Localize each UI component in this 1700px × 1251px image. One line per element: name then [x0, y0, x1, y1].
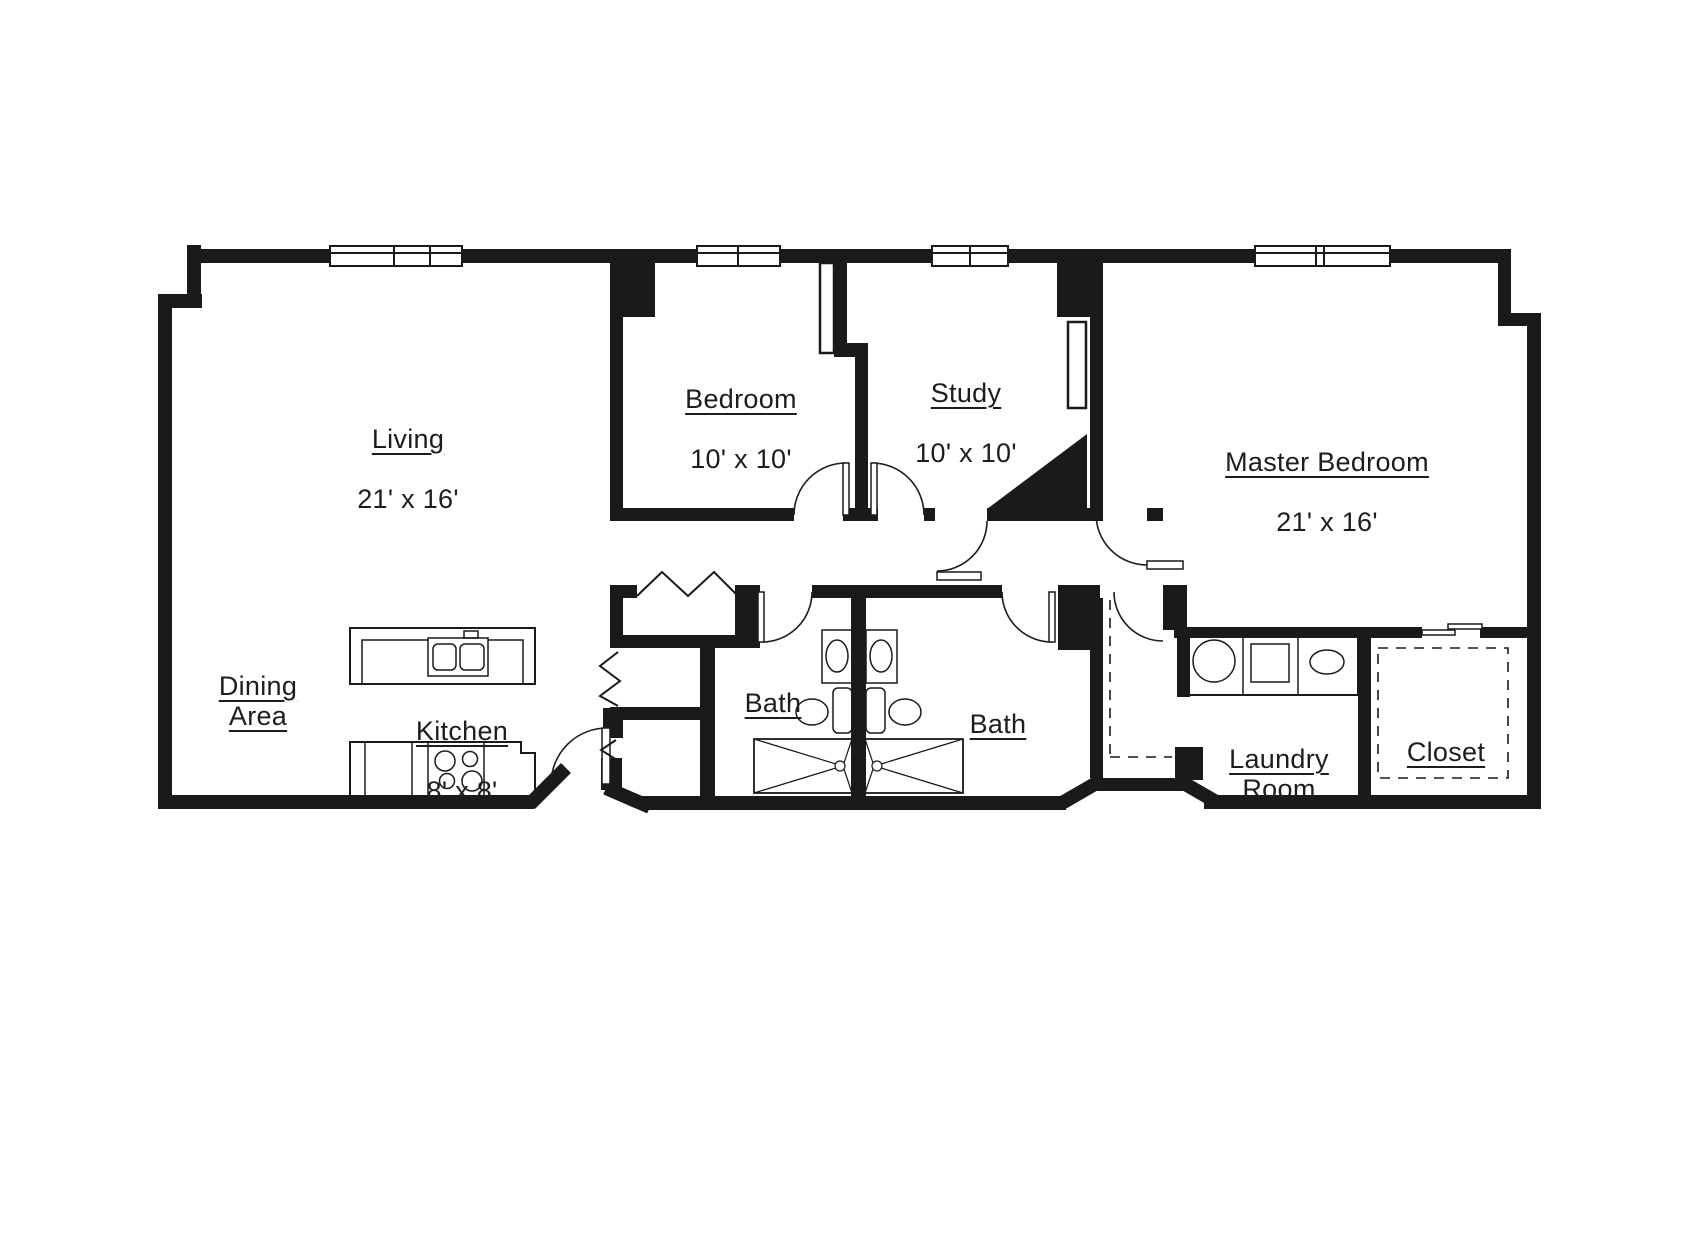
bath2-shower — [865, 739, 963, 793]
room-name: Study — [915, 378, 1017, 408]
linen-closet-bifold — [637, 572, 736, 596]
bedroom-shelf — [820, 263, 834, 353]
closet-bypass-door — [1422, 624, 1482, 640]
bedroom-door-leaf — [843, 463, 849, 515]
room-label-laundry-room: Laundry Room — [1229, 714, 1329, 864]
bath2-door-leaf — [1049, 592, 1055, 642]
room-label-living: Living 21' x 16' — [357, 394, 459, 544]
study-window — [932, 246, 1008, 266]
room-name: Laundry Room — [1229, 744, 1329, 804]
room-label-bath-2: Bath — [970, 679, 1027, 799]
room-name: Bath — [970, 709, 1027, 739]
laundry-fixtures — [1185, 628, 1358, 695]
floorplan-page: Living 21' x 16' Bedroom 10' x 10' Study… — [0, 0, 1700, 1251]
master-door-leaf — [1147, 561, 1183, 569]
room-name: Living — [357, 424, 459, 454]
room-name: Bedroom — [685, 384, 797, 414]
bath2-door-arc — [1002, 592, 1052, 642]
room-label-bedroom: Bedroom 10' x 10' — [685, 354, 797, 504]
bath2-vanity — [866, 630, 897, 683]
room-label-dining-area: Dining Area — [219, 641, 297, 791]
room-name: Closet — [1407, 737, 1485, 767]
vestibule-door-arc — [1114, 592, 1163, 641]
study-door-leaf — [871, 463, 877, 515]
room-dimensions: 10' x 10' — [915, 438, 1017, 468]
room-dimensions: 10' x 10' — [685, 444, 797, 474]
kitchen-sink-counter — [350, 628, 535, 684]
drain-icon — [835, 761, 845, 771]
bath1-toilet — [796, 688, 852, 733]
bedroom-window — [697, 246, 780, 266]
hall-door-leaf — [937, 572, 981, 580]
room-name: Master Bedroom — [1225, 447, 1429, 477]
room-label-study: Study 10' x 10' — [915, 348, 1017, 498]
room-dimensions: 21' x 16' — [357, 484, 459, 514]
laundry-sink-icon — [1310, 650, 1344, 674]
room-label-master-bedroom: Master Bedroom 21' x 16' — [1225, 417, 1429, 567]
room-label-kitchen: Kitchen 8' x 8' — [416, 686, 508, 836]
hall-closet-bifold — [600, 652, 620, 706]
bath1-door-arc — [762, 592, 812, 642]
living-window — [330, 246, 462, 266]
bedroom-door-arc — [794, 463, 846, 515]
room-dimensions: 21' x 16' — [1225, 507, 1429, 537]
room-dimensions: 8' x 8' — [416, 776, 508, 806]
room-label-bath-1: Bath — [745, 658, 802, 778]
room-label-closet: Closet — [1407, 707, 1485, 827]
room-name: Bath — [745, 688, 802, 718]
drain-icon — [872, 761, 882, 771]
bath1-door-leaf — [758, 592, 764, 642]
bath1-vanity — [822, 630, 853, 683]
floorplan-drawing — [0, 0, 1700, 1251]
study-shelf — [1068, 322, 1086, 408]
bath2-toilet — [866, 688, 921, 733]
master-window — [1255, 246, 1390, 266]
dryer-icon — [1251, 644, 1289, 682]
hall-door-arc — [937, 521, 987, 571]
washer-icon — [1193, 640, 1235, 682]
room-name: Dining Area — [219, 671, 297, 731]
room-name: Kitchen — [416, 716, 508, 746]
faucet-icon — [464, 631, 478, 638]
master-door-arc — [1096, 514, 1147, 565]
